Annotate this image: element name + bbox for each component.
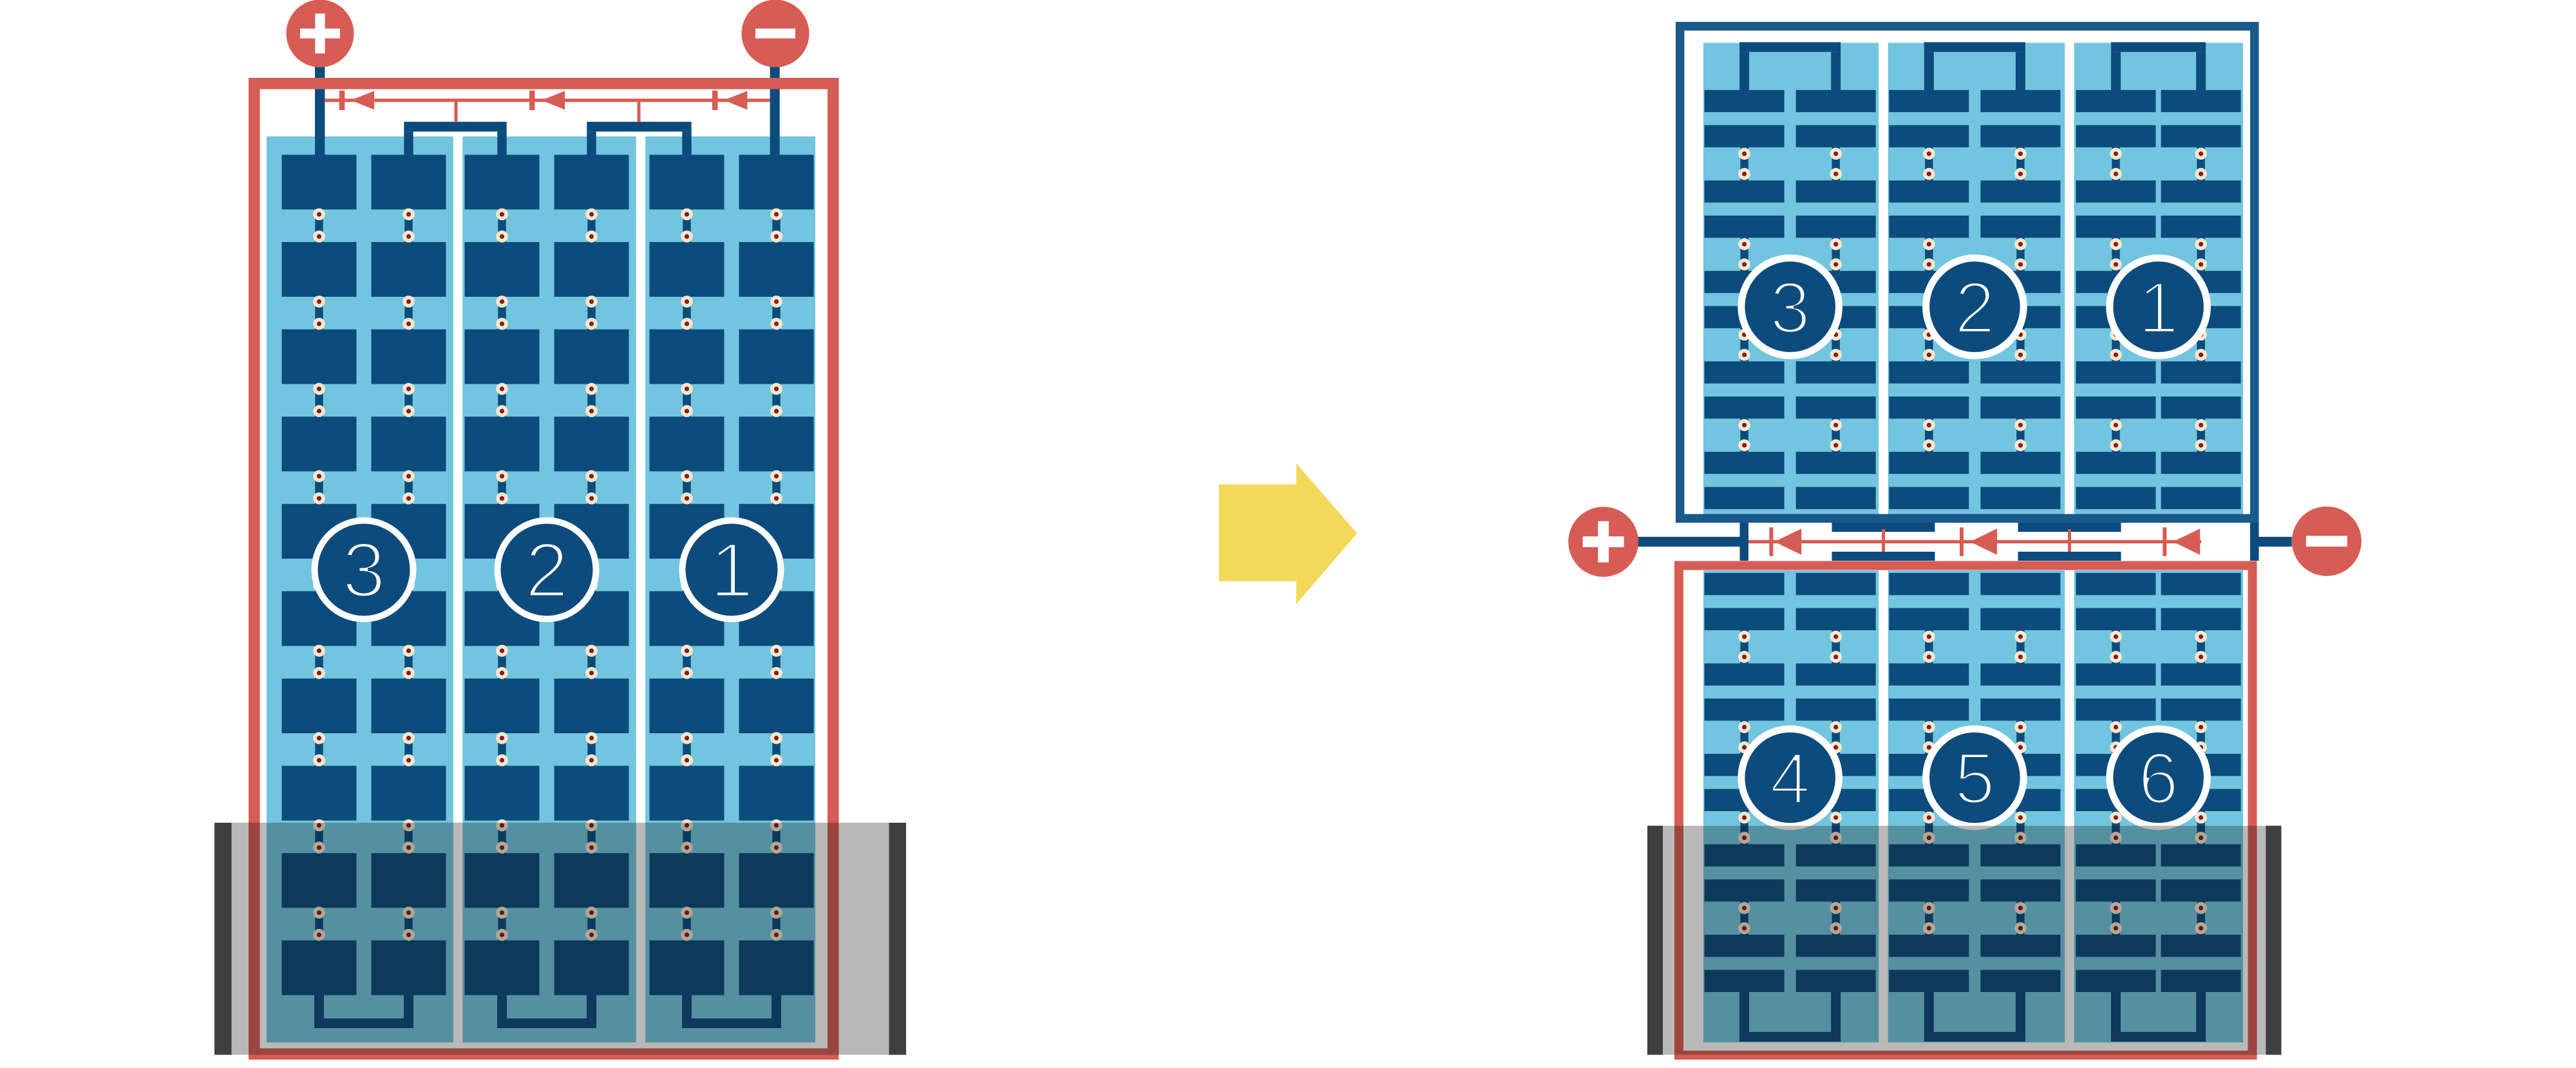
svg-text:6: 6: [2138, 738, 2179, 819]
svg-text:4: 4: [1770, 738, 1810, 819]
svg-text:2: 2: [525, 526, 568, 614]
svg-text:3: 3: [342, 526, 385, 614]
svg-text:3: 3: [1770, 267, 1810, 348]
svg-text:1: 1: [710, 526, 753, 614]
svg-text:2: 2: [1955, 267, 1995, 348]
svg-text:5: 5: [1955, 738, 1995, 819]
svg-text:1: 1: [2138, 267, 2179, 348]
